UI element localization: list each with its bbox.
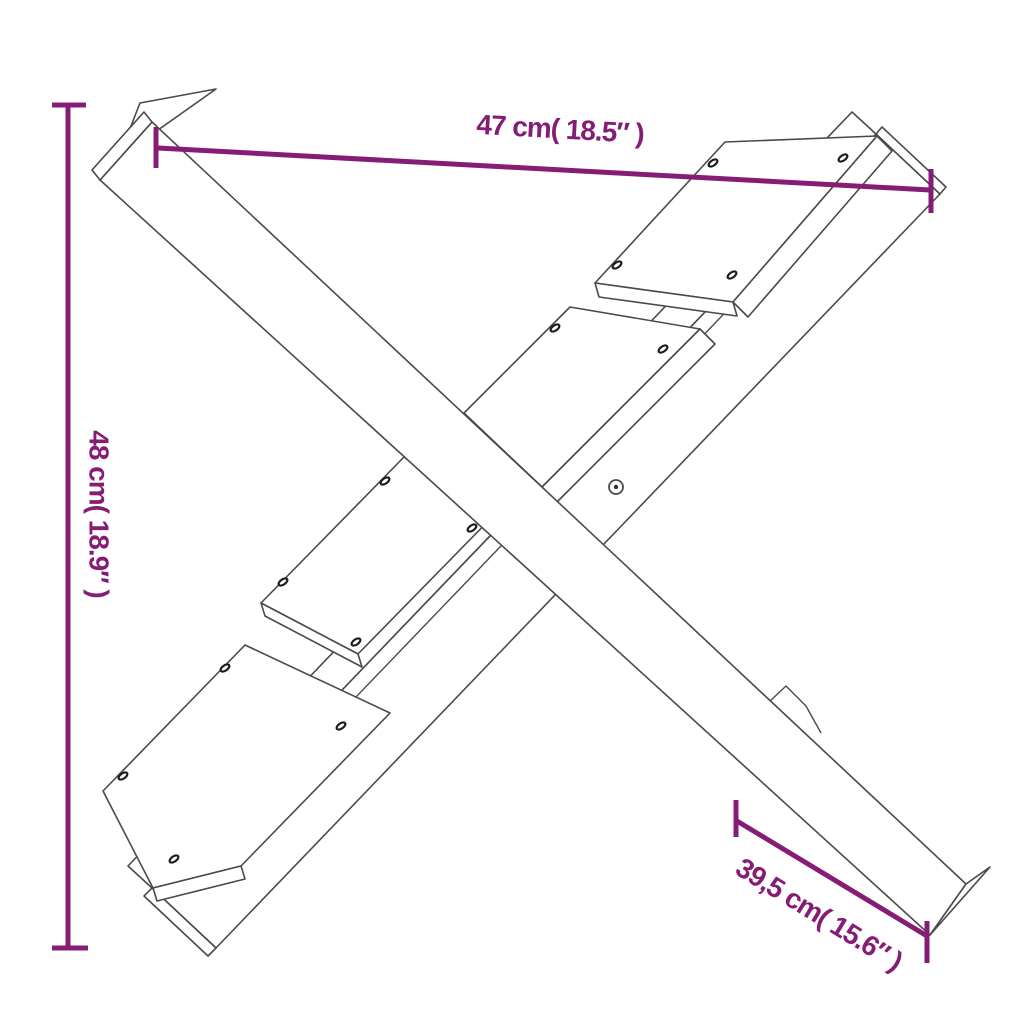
dimension-width-tick-left	[154, 127, 159, 168]
dimension-depth-tick-right	[925, 921, 930, 963]
dimension-width-label: 47 cm( 18.5″ )	[476, 109, 645, 149]
dimension-height: 48 cm( 18.9″ )	[52, 103, 115, 951]
dimension-height-label: 48 cm( 18.9″ )	[84, 430, 115, 598]
bolt-center-dot	[614, 485, 618, 489]
pivot-bolt	[609, 480, 623, 494]
diagram-canvas: 48 cm( 18.9″ ) 47 cm( 18.5″ ) 39,5 cm( 1…	[0, 0, 1024, 1024]
dimension-depth-tick-left	[734, 800, 739, 837]
diagram-page: 48 cm( 18.9″ ) 47 cm( 18.5″ ) 39,5 cm( 1…	[0, 0, 1024, 1024]
